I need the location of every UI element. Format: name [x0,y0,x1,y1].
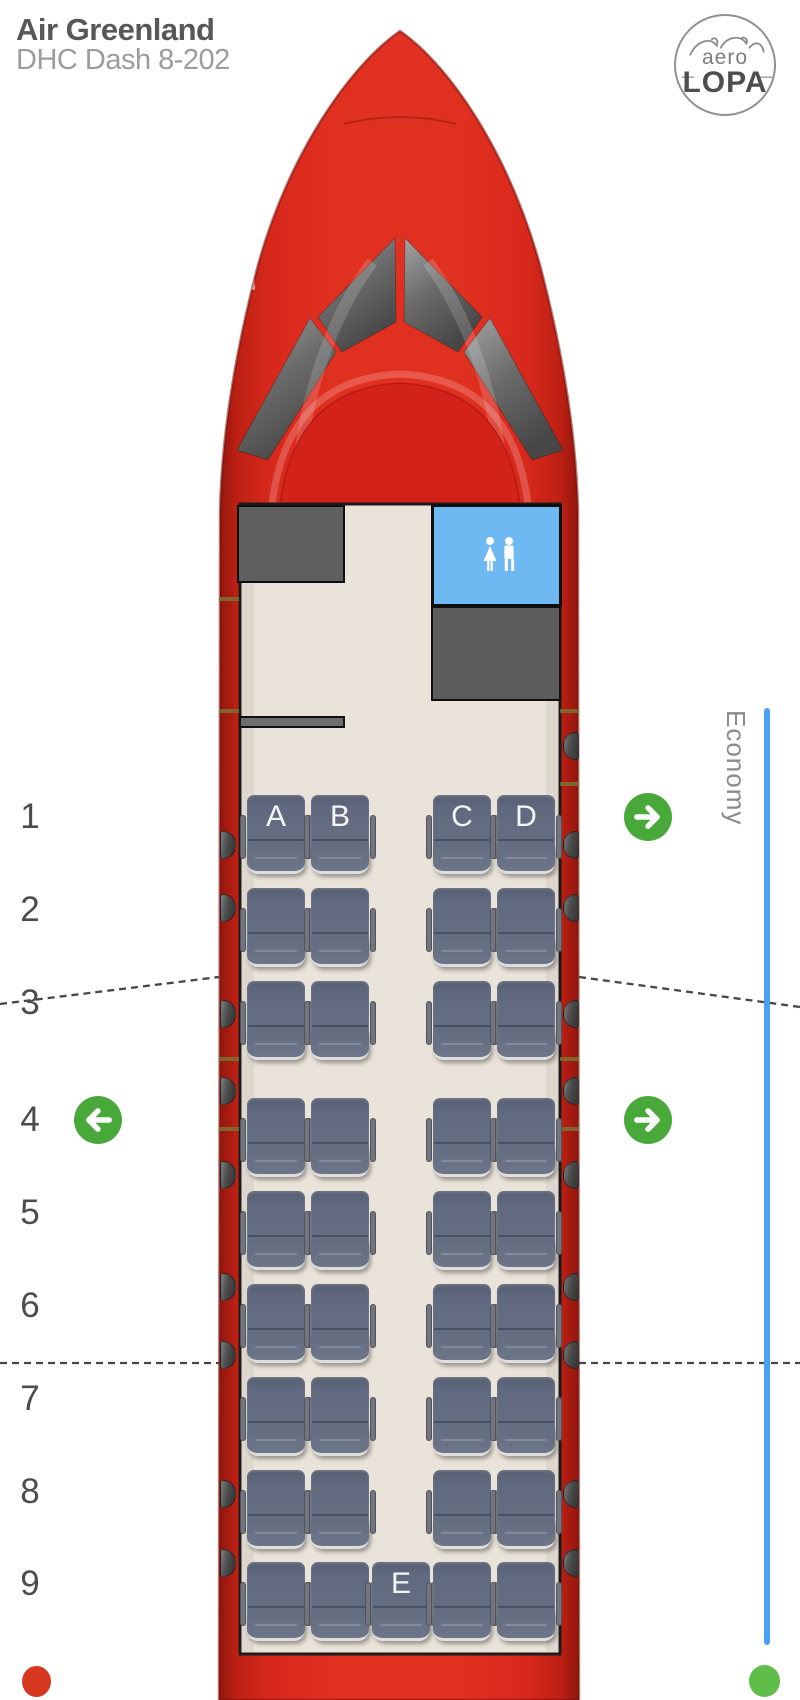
seat-4B[interactable] [311,1098,369,1180]
seat-6D[interactable] [497,1284,555,1366]
seat-backrest [247,1284,305,1340]
seat-9D[interactable] [497,1562,555,1644]
seat-4C[interactable] [433,1098,491,1180]
seat-backrest [311,1470,369,1526]
seat-cushion [497,1427,555,1456]
seat-6B[interactable] [311,1284,369,1366]
economy-class-label: Economy [720,710,751,825]
row-number-2: 2 [12,889,48,931]
seat-cushion [433,1520,491,1549]
seat-8B[interactable] [311,1470,369,1552]
page-title-airline: Air Greenland [16,12,215,48]
exit-indicator-right-row-4 [624,1096,672,1144]
seat-8A[interactable] [247,1470,305,1552]
seat-cushion [311,1334,369,1363]
page-subtitle-aircraft: DHC Dash 8-202 [16,44,230,77]
door-frame-mark-right [560,1127,579,1131]
seat-1B[interactable]: B [311,795,369,877]
seat-letter: C [433,802,491,832]
seat-backrest [433,1098,491,1154]
seat-backrest [247,1098,305,1154]
seat-backrest [247,1191,305,1247]
seat-backrest [497,1562,555,1618]
row-number-8: 8 [12,1471,48,1513]
seat-cushion [497,1612,555,1641]
seat-letter: A [247,802,305,832]
seat-cushion [247,845,305,874]
seat-5B[interactable] [311,1191,369,1273]
row-number-4: 4 [12,1099,48,1141]
row-number-9: 9 [12,1563,48,1605]
seat-cushion [247,1031,305,1060]
seat-backrest [311,1284,369,1340]
door-frame-mark-left [219,1057,239,1061]
seat-cushion [311,845,369,874]
economy-class-line [764,708,770,1645]
door-frame-mark-left [219,597,239,601]
seat-cushion [311,1241,369,1270]
legend-dot-green [749,1665,780,1697]
seat-cushion [433,1334,491,1363]
door-frame-mark-right [560,709,579,713]
seat-8D[interactable] [497,1470,555,1552]
seat-backrest [433,1284,491,1340]
seat-3A[interactable] [247,981,305,1063]
seat-3C[interactable] [433,981,491,1063]
seat-7D[interactable] [497,1377,555,1459]
seat-letter: B [311,802,369,832]
seat-backrest [433,1191,491,1247]
exit-indicator-right-row-1 [624,793,672,841]
seat-cushion [311,1031,369,1060]
seat-cushion [433,1241,491,1270]
row-number-5: 5 [12,1192,48,1234]
seat-backrest [433,1377,491,1433]
seat-cushion [433,1612,491,1641]
airstair-door-front-left [239,716,345,728]
seat-backrest [497,1377,555,1433]
seat-4A[interactable] [247,1098,305,1180]
seat-9B[interactable] [311,1562,369,1644]
seat-backrest [497,888,555,944]
door-frame-mark-left [219,709,239,713]
seat-backrest [311,1098,369,1154]
seat-9C[interactable] [433,1562,491,1644]
seat-cushion [247,1520,305,1549]
seat-letter: E [372,1569,430,1599]
seat-9A[interactable] [247,1562,305,1644]
seat-7B[interactable] [311,1377,369,1459]
seat-cushion [311,1612,369,1641]
lavatory-wc-icon [478,536,522,576]
seat-5D[interactable] [497,1191,555,1273]
seat-2B[interactable] [311,888,369,970]
seat-cushion [311,938,369,967]
seat-backrest [247,888,305,944]
seat-backrest [497,1191,555,1247]
seat-backrest [247,1562,305,1618]
galley-front-left [237,505,345,583]
seat-3B[interactable] [311,981,369,1063]
seat-cushion [497,1031,555,1060]
door-frame-mark-right [560,1057,579,1061]
door-frame-mark-right [560,782,579,786]
seat-6A[interactable] [247,1284,305,1366]
aerolopa-logo: aero LOPA [674,14,776,116]
seat-4D[interactable] [497,1098,555,1180]
seat-cushion [497,1148,555,1177]
seat-7A[interactable] [247,1377,305,1459]
seat-2C[interactable] [433,888,491,970]
seat-5A[interactable] [247,1191,305,1273]
seat-2A[interactable] [247,888,305,970]
seat-9E[interactable]: E [372,1562,430,1644]
lavatory [431,504,562,607]
seat-5C[interactable] [433,1191,491,1273]
seat-backrest [497,1098,555,1154]
seat-backrest [497,981,555,1037]
seat-backrest [311,1377,369,1433]
seat-cushion [497,845,555,874]
seat-cushion [497,1520,555,1549]
row-number-7: 7 [12,1378,48,1420]
seat-cushion [372,1612,430,1641]
exit-indicator-left-row-4 [74,1096,122,1144]
aircraft-fuselage [0,0,800,1700]
seat-map-page: 1ABCD23456789E Economy Air Greenland DHC… [0,0,800,1700]
seat-3D[interactable] [497,981,555,1063]
seat-backrest [433,888,491,944]
seat-1A[interactable]: A [247,795,305,877]
seat-backrest [433,1470,491,1526]
logo-text-lopa: LOPA [676,66,774,100]
seat-2D[interactable] [497,888,555,970]
seat-cushion [497,1334,555,1363]
seat-cushion [247,1427,305,1456]
seat-backrest [311,1191,369,1247]
seat-cushion [247,1241,305,1270]
seat-cushion [433,845,491,874]
seat-backrest [247,1470,305,1526]
legend-dot-red [22,1666,51,1697]
seat-cushion [497,938,555,967]
seat-cushion [247,1148,305,1177]
row-number-1: 1 [12,796,48,838]
seat-backrest [247,1377,305,1433]
seat-cushion [433,1427,491,1456]
seat-cushion [247,1612,305,1641]
seat-6C[interactable] [433,1284,491,1366]
exit-arrow-icon [74,1096,122,1144]
seat-7C[interactable] [433,1377,491,1459]
seat-8C[interactable] [433,1470,491,1552]
seat-backrest [311,981,369,1037]
seat-backrest [497,1470,555,1526]
seat-1C[interactable]: C [433,795,491,877]
seat-letter: D [497,802,555,832]
seat-backrest [311,1562,369,1618]
row-number-3: 3 [12,982,48,1024]
seat-cushion [433,1031,491,1060]
seat-cushion [311,1520,369,1549]
seat-cushion [311,1427,369,1456]
seat-cushion [247,938,305,967]
exit-arrow-icon [624,1096,672,1144]
seat-backrest [497,1284,555,1340]
row-number-6: 6 [12,1285,48,1327]
seat-1D[interactable]: D [497,795,555,877]
seat-cushion [247,1334,305,1363]
seat-cushion [433,1148,491,1177]
seat-backrest [433,1562,491,1618]
seat-cushion [497,1241,555,1270]
seat-cushion [433,938,491,967]
seat-backrest [247,981,305,1037]
galley-aft-of-lavatory [431,606,561,701]
seat-backrest [433,981,491,1037]
door-frame-mark-left [219,1127,239,1131]
seat-cushion [311,1148,369,1177]
seat-backrest [311,888,369,944]
exit-arrow-icon [624,793,672,841]
